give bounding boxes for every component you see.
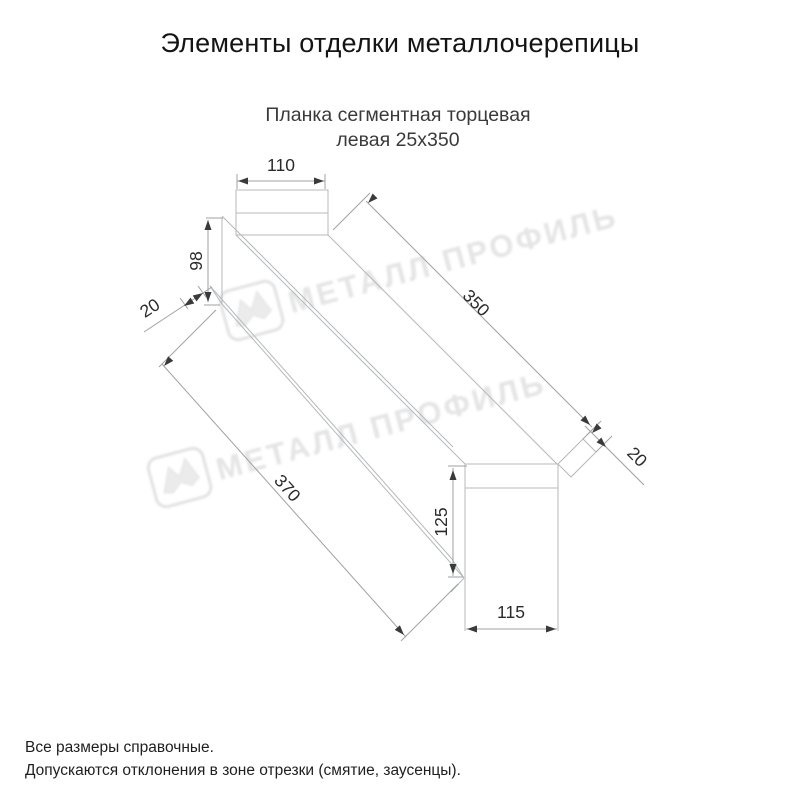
watermark-2: МЕТАЛЛ ПРОФИЛЬ	[146, 356, 551, 509]
dim-label-left-height: 98	[186, 251, 206, 270]
dim-20-right: 20	[583, 423, 651, 485]
dim-label-hem-left: 20	[136, 294, 163, 322]
dim-115: 115	[466, 602, 557, 633]
end-fold-flap	[558, 439, 596, 477]
footer-note-line2: Допускаются отклонения в зоне отрезки (с…	[25, 762, 461, 780]
dim-arrow	[193, 290, 205, 301]
dim-label-bottom-length: 370	[270, 470, 305, 505]
dim-label-hem-right: 20	[623, 443, 651, 471]
dim-370: 370	[159, 310, 458, 641]
dim-arrow	[205, 220, 212, 230]
drawing-page: Элементы отделки металлочерепицы Планка …	[0, 0, 800, 800]
dim-label-top-width: 110	[267, 155, 295, 175]
watermark-text: МЕТАЛЛ ПРОФИЛЬ	[284, 198, 621, 320]
footer-note-line1: Все размеры справочные.	[25, 739, 214, 757]
watermark-1: МЕТАЛЛ ПРОФИЛЬ	[218, 189, 623, 342]
metall-profil-logo-icon	[146, 446, 213, 509]
dim-arrow	[590, 423, 602, 435]
near-end-section	[465, 439, 596, 631]
dim-110: 110	[237, 155, 325, 189]
dim-label-end-height: 125	[431, 507, 451, 536]
watermark-text: МЕТАЛЛ ПРОФИЛЬ	[212, 365, 549, 487]
dim-label-end-width: 115	[497, 602, 525, 622]
dim-label-top-length: 350	[459, 285, 494, 320]
dim-arrow	[238, 178, 248, 185]
dim-arrow	[450, 470, 457, 480]
dim-arrow	[467, 626, 477, 633]
technical-drawing: МЕТАЛЛ ПРОФИЛЬ МЕТАЛЛ ПРОФИЛЬ	[0, 0, 800, 800]
dim-arrow	[314, 178, 324, 185]
dim-arrow	[546, 626, 556, 633]
